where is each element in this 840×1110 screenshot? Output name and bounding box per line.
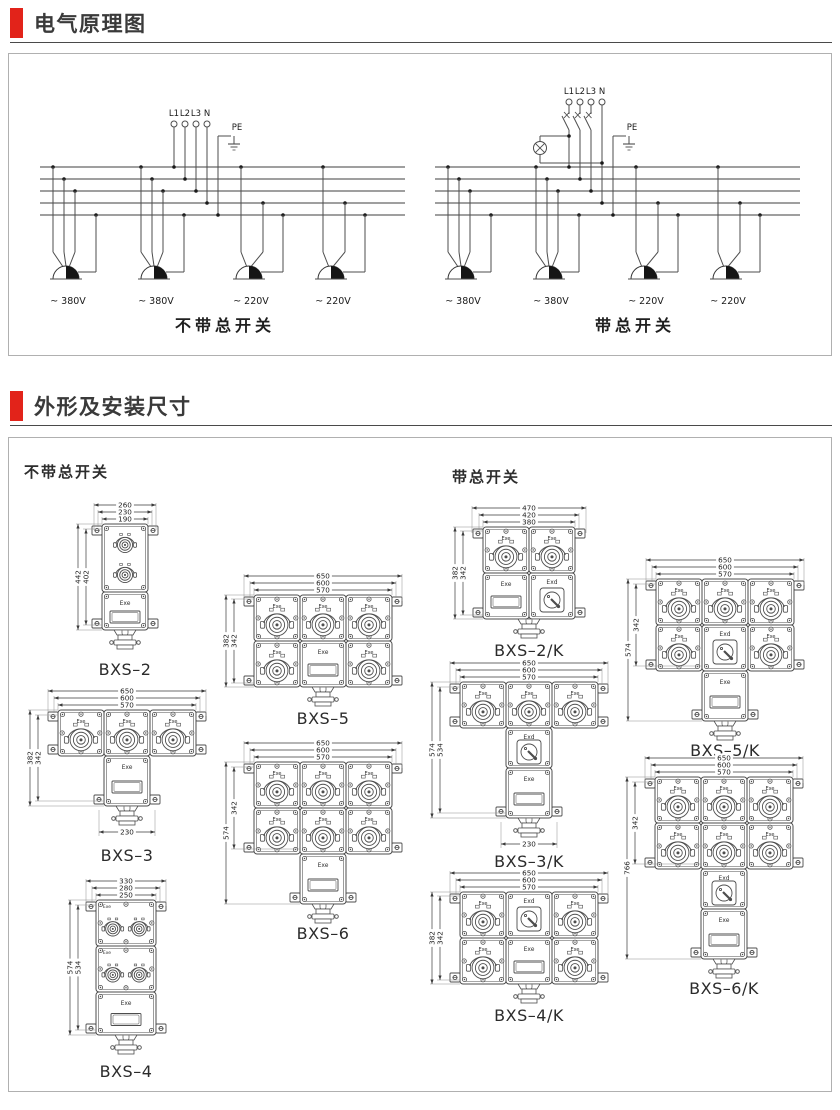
- svg-text:~ 380V: ~ 380V: [50, 296, 86, 307]
- svg-text:534: 534: [74, 960, 83, 974]
- svg-text:342: 342: [632, 618, 641, 632]
- svg-text:Exe: Exe: [674, 634, 683, 640]
- product-caption-bxs6k: BXS–6/K: [659, 979, 789, 998]
- svg-text:Exe: Exe: [272, 650, 281, 656]
- svg-text:L2: L2: [180, 109, 190, 119]
- drawing-svg-bxs6: ExeExeExeExeExeExeExe650600570574342: [220, 738, 436, 930]
- svg-text:570: 570: [316, 753, 330, 762]
- svg-text:Exe: Exe: [765, 832, 774, 838]
- product-caption-bxs4: BXS–4: [61, 1062, 191, 1081]
- schematic-svg: L1L2L3NPE~ 380V~ 380V~ 220V~ 220V: [30, 66, 420, 326]
- svg-text:~ 380V: ~ 380V: [533, 296, 569, 307]
- svg-text:230: 230: [120, 828, 134, 837]
- svg-text:Exe: Exe: [524, 691, 533, 697]
- svg-text:Exe: Exe: [547, 536, 556, 542]
- svg-text:N: N: [599, 87, 605, 97]
- svg-text:L1: L1: [564, 87, 574, 97]
- svg-text:~ 220V: ~ 220V: [628, 296, 664, 307]
- drawing-svg-bxs5: ExeExeExeExeExeExe650600570382342: [220, 571, 436, 711]
- schematic-no-main-switch: L1L2L3NPE~ 380V~ 380V~ 220V~ 220V: [30, 66, 420, 326]
- section-rule: [10, 42, 832, 43]
- svg-text:N: N: [204, 109, 210, 119]
- svg-text:Exe: Exe: [674, 588, 683, 594]
- drawing-svg-bxs3: ExeExeExeExe650600570382342230: [24, 686, 240, 844]
- section-title-dimensions: 外形及安装尺寸: [34, 391, 192, 421]
- svg-text:190: 190: [118, 515, 132, 524]
- svg-text:Exe: Exe: [720, 679, 731, 686]
- svg-text:L2: L2: [575, 87, 585, 97]
- product-caption-bxs3: BXS–3: [62, 846, 192, 865]
- svg-text:570: 570: [522, 673, 536, 682]
- svg-text:230: 230: [522, 840, 536, 849]
- drawing-bxs5: ExeExeExeExeExeExe650600570382342: [220, 571, 436, 711]
- svg-text:342: 342: [631, 816, 640, 830]
- svg-text:Exe: Exe: [364, 771, 373, 777]
- drawing-bxs2: Exe260230190442402: [72, 500, 176, 654]
- svg-text:Exe: Exe: [121, 1000, 132, 1007]
- svg-text:342: 342: [230, 634, 239, 648]
- svg-text:570: 570: [717, 768, 731, 777]
- svg-text:Exe: Exe: [364, 650, 373, 656]
- svg-text:Exe: Exe: [570, 901, 579, 907]
- svg-text:402: 402: [82, 570, 91, 584]
- svg-text:342: 342: [459, 566, 468, 580]
- svg-text:570: 570: [316, 586, 330, 595]
- svg-text:Exe: Exe: [364, 817, 373, 823]
- group-label-right: 带总开关: [452, 466, 520, 487]
- drawing-bxs3k: ExeExeExeExdExe650600570574534230: [426, 658, 642, 856]
- svg-text:PE: PE: [232, 123, 243, 133]
- svg-text:570: 570: [718, 570, 732, 579]
- svg-text:Exe: Exe: [122, 764, 133, 771]
- svg-text:Exe: Exe: [524, 946, 535, 953]
- svg-text:Exe: Exe: [364, 604, 373, 610]
- svg-text:~ 220V: ~ 220V: [233, 296, 269, 307]
- product-caption-bxs2: BXS–2: [60, 660, 190, 679]
- svg-text:Exe: Exe: [122, 719, 131, 725]
- svg-text:~ 380V: ~ 380V: [138, 296, 174, 307]
- svg-text:L3: L3: [586, 87, 596, 97]
- svg-text:380: 380: [522, 518, 536, 527]
- schematic-svg: L1L2L3NPE~ 380V~ 380V~ 220V~ 220V: [425, 66, 815, 326]
- drawing-svg-bxs4: ExeExeExe330280250574534: [64, 876, 192, 1058]
- product-caption-bxs6: BXS–6: [258, 924, 388, 943]
- svg-text:766: 766: [623, 861, 632, 875]
- group-label-left: 不带总开关: [24, 461, 109, 482]
- svg-text:Exe: Exe: [719, 917, 730, 924]
- drawing-bxs5k: ExeExeExeExeExdExeExe650600570574342: [622, 555, 838, 745]
- section-title-schematic: 电气原理图: [34, 8, 147, 38]
- svg-text:Exe: Exe: [168, 719, 177, 725]
- svg-text:Exd: Exd: [546, 579, 557, 586]
- drawing-svg-bxs4k: ExeExdExeExeExeExe650600570382342: [426, 868, 642, 1008]
- product-caption-bxs5: BXS–5: [258, 709, 388, 728]
- drawing-bxs2k: ExeExeExeExd470420380382342: [449, 503, 611, 643]
- drawing-bxs3: ExeExeExeExe650600570382342230: [24, 686, 240, 844]
- svg-text:Exe: Exe: [719, 832, 728, 838]
- section-header-schematic: 电气原理图: [10, 8, 147, 38]
- drawing-bxs4k: ExeExdExeExeExeExe650600570382342: [426, 868, 642, 1008]
- accent-bar-icon: [10, 391, 23, 421]
- drawing-svg-bxs5k: ExeExeExeExeExdExeExe650600570574342: [622, 555, 838, 745]
- drawing-svg-bxs2: Exe260230190442402: [72, 500, 176, 654]
- svg-text:Exe: Exe: [673, 832, 682, 838]
- svg-text:342: 342: [230, 801, 239, 815]
- svg-text:Exe: Exe: [272, 817, 281, 823]
- catalog-page: { "page": { "accent_color": "#e2231a", "…: [0, 0, 840, 1110]
- svg-text:250: 250: [119, 891, 133, 900]
- svg-text:342: 342: [436, 931, 445, 945]
- svg-text:Exe: Exe: [318, 862, 329, 869]
- svg-text:Exe: Exe: [673, 786, 682, 792]
- svg-text:Exe: Exe: [478, 901, 487, 907]
- svg-text:Exe: Exe: [272, 604, 281, 610]
- svg-text:~ 220V: ~ 220V: [315, 296, 351, 307]
- svg-text:Exe: Exe: [318, 649, 329, 656]
- svg-text:Exe: Exe: [103, 950, 111, 956]
- svg-text:~ 380V: ~ 380V: [445, 296, 481, 307]
- svg-text:Exe: Exe: [103, 904, 111, 910]
- drawing-bxs4: ExeExeExe330280250574534: [64, 876, 192, 1058]
- svg-text:Exe: Exe: [478, 691, 487, 697]
- svg-text:Exe: Exe: [765, 786, 774, 792]
- svg-text:574: 574: [222, 826, 231, 840]
- svg-text:Exe: Exe: [120, 600, 131, 607]
- svg-text:Exd: Exd: [523, 898, 534, 905]
- drawing-bxs6: ExeExeExeExeExeExeExe650600570574342: [220, 738, 436, 930]
- svg-text:Exd: Exd: [719, 631, 730, 638]
- svg-text:Exe: Exe: [478, 947, 487, 953]
- drawing-bxs6k: ExeExeExeExeExeExeExdExe650600570766342: [621, 753, 837, 985]
- drawing-svg-bxs3k: ExeExeExeExdExe650600570574534230: [426, 658, 642, 856]
- svg-text:Exe: Exe: [570, 947, 579, 953]
- svg-text:Exe: Exe: [524, 776, 535, 783]
- product-caption-bxs4k: BXS–4/K: [464, 1006, 594, 1025]
- svg-text:Exe: Exe: [76, 719, 85, 725]
- drawing-svg-bxs6k: ExeExeExeExeExeExeExdExe650600570766342: [621, 753, 837, 985]
- svg-text:Exe: Exe: [318, 771, 327, 777]
- svg-text:Exe: Exe: [720, 588, 729, 594]
- svg-text:Exe: Exe: [501, 536, 510, 542]
- svg-text:Exe: Exe: [766, 634, 775, 640]
- section-header-dimensions: 外形及安装尺寸: [10, 391, 192, 421]
- schematic-caption-right: 带总开关: [440, 312, 830, 336]
- svg-text:570: 570: [522, 883, 536, 892]
- accent-bar-icon: [10, 8, 23, 38]
- drawing-svg-bxs2k: ExeExeExeExd470420380382342: [449, 503, 611, 643]
- svg-text:Exe: Exe: [272, 771, 281, 777]
- svg-text:Exe: Exe: [318, 604, 327, 610]
- svg-text:570: 570: [120, 701, 134, 710]
- svg-text:L3: L3: [191, 109, 201, 119]
- svg-text:PE: PE: [627, 123, 638, 133]
- svg-text:~ 220V: ~ 220V: [710, 296, 746, 307]
- svg-text:534: 534: [436, 743, 445, 757]
- svg-text:Exe: Exe: [766, 588, 775, 594]
- svg-text:Exe: Exe: [318, 817, 327, 823]
- svg-text:Exe: Exe: [570, 691, 579, 697]
- svg-text:L1: L1: [169, 109, 179, 119]
- section-rule: [10, 425, 832, 426]
- schematic-with-main-switch: L1L2L3NPE~ 380V~ 380V~ 220V~ 220V: [425, 66, 815, 326]
- svg-text:Exe: Exe: [501, 581, 512, 588]
- schematic-caption-left: 不带总开关: [30, 312, 420, 336]
- svg-text:Exe: Exe: [719, 786, 728, 792]
- svg-text:574: 574: [624, 643, 633, 657]
- svg-text:342: 342: [34, 751, 43, 765]
